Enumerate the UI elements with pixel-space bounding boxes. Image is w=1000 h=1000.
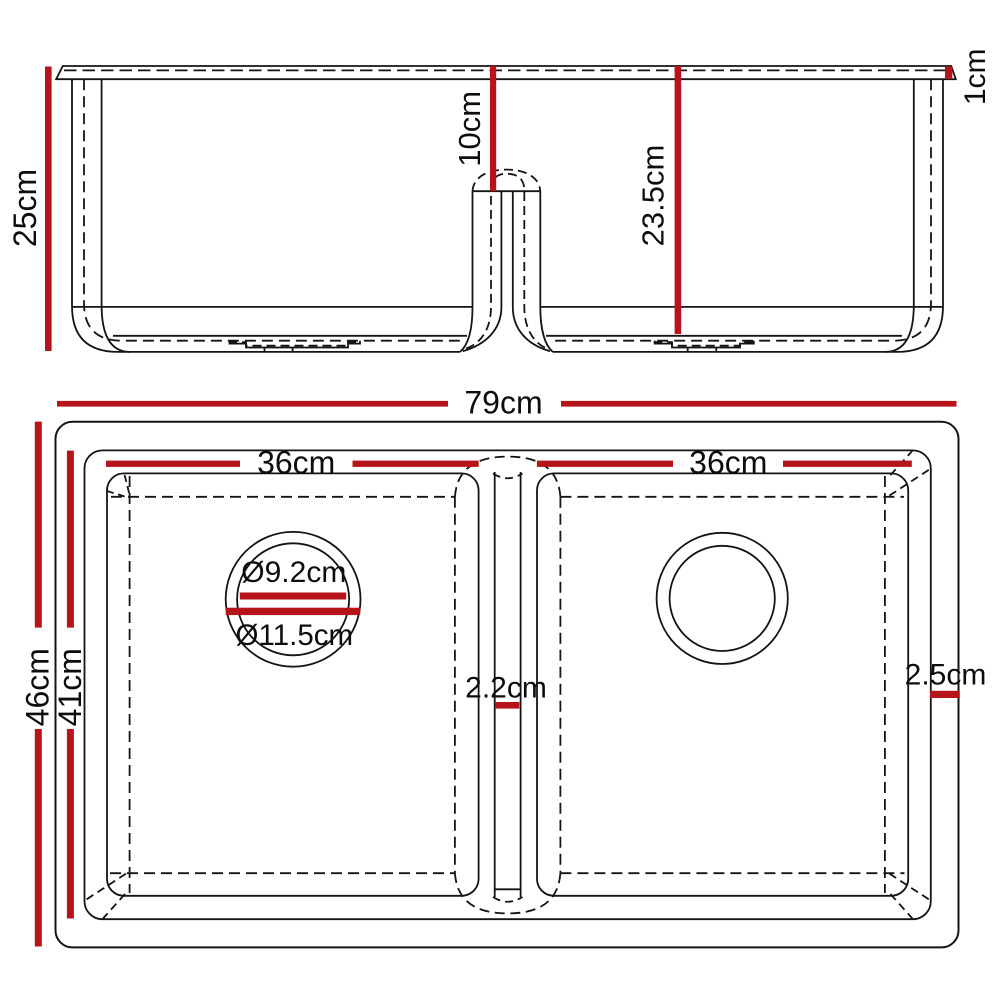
- svg-text:36cm: 36cm: [257, 445, 335, 481]
- svg-text:2.5cm: 2.5cm: [905, 659, 987, 692]
- svg-text:10cm: 10cm: [452, 91, 487, 167]
- svg-text:1cm: 1cm: [959, 48, 992, 105]
- svg-text:46cm: 46cm: [20, 648, 56, 726]
- svg-text:2.2cm: 2.2cm: [465, 672, 547, 705]
- svg-text:25cm: 25cm: [7, 169, 43, 247]
- svg-text:41cm: 41cm: [52, 648, 88, 726]
- svg-text:Ø9.2cm: Ø9.2cm: [241, 556, 346, 589]
- svg-text:36cm: 36cm: [689, 445, 767, 481]
- svg-text:Ø11.5cm: Ø11.5cm: [236, 619, 354, 652]
- svg-text:79cm: 79cm: [464, 385, 542, 421]
- svg-text:23.5cm: 23.5cm: [635, 145, 670, 247]
